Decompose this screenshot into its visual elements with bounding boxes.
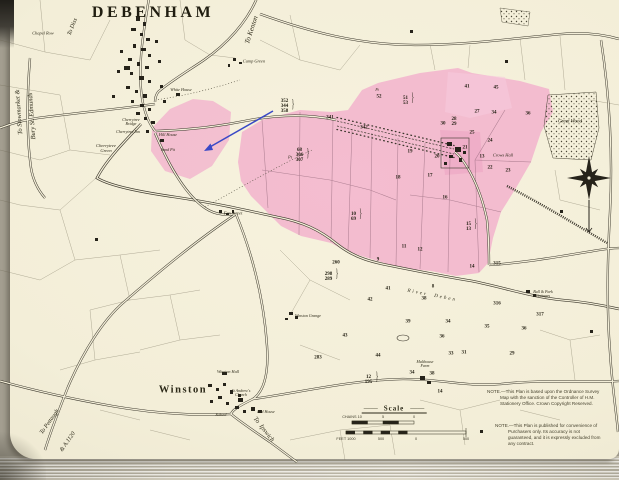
scale-bars [346, 421, 466, 437]
great-wood [544, 92, 599, 160]
winston-buildings [208, 372, 262, 413]
scale-label: Scale [362, 405, 427, 414]
compass-rose-icon [567, 156, 611, 232]
stippled-lane [507, 186, 607, 243]
map-title: DEBENHAM [92, 4, 214, 22]
scrub-patch [500, 8, 530, 26]
estate-highlight [151, 68, 553, 276]
note-ordnance-survey: NOTE.—This Plan is based upon the Ordnan… [487, 389, 600, 407]
note-purchasers: NOTE.—This Plan is published for conveni… [495, 423, 603, 447]
photographed-map-page: { "map": { "title": "DEBENHAM", "colors"… [0, 0, 619, 480]
map-linework [0, 0, 619, 480]
